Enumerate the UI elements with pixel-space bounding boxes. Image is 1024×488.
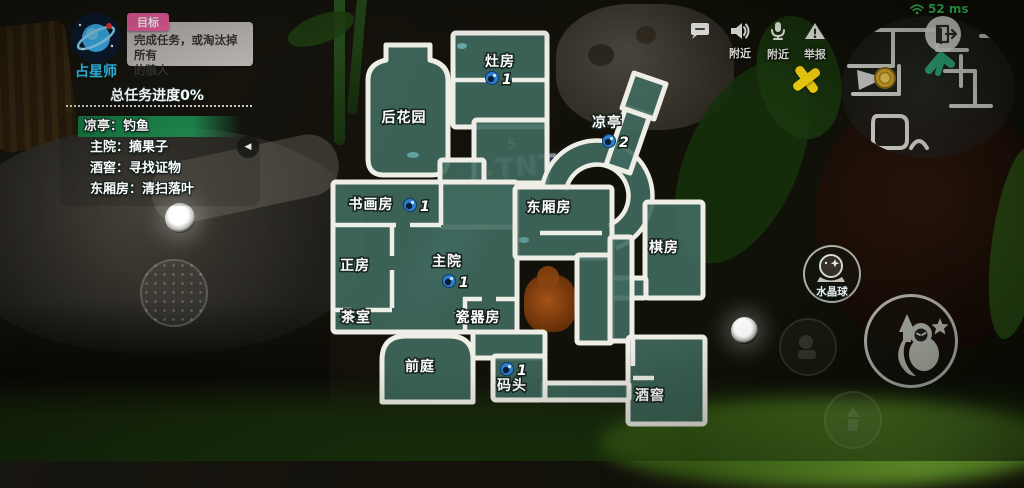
- divider: [66, 105, 252, 107]
- water-splash: [457, 43, 467, 49]
- disabled-ability-button[interactable]: [824, 391, 882, 449]
- task-text: 酒窖：寻找证物: [84, 161, 181, 176]
- eye-count: 1: [517, 363, 527, 379]
- task-panel-collapse-button[interactable]: ◀: [237, 136, 259, 158]
- room-wine-cellar: [628, 337, 705, 424]
- wifi-icon: [910, 4, 924, 15]
- room-label-pavilion: 凉亭: [592, 114, 622, 131]
- objective-badge: 目标: [127, 13, 169, 31]
- main-ability-button[interactable]: [864, 294, 958, 388]
- astrologer-planet-icon: [71, 13, 121, 63]
- ninja-character-icon: [872, 302, 950, 380]
- room-label-east-wing: 东厢房: [527, 199, 572, 216]
- task-item[interactable]: 酒窖：寻找证物: [84, 158, 260, 179]
- task-text: 主院：摘果子: [84, 140, 168, 155]
- room-pavilion-shape: [622, 73, 666, 119]
- report-button[interactable]: 举报: [795, 22, 835, 62]
- room-label-chess: 棋房: [649, 239, 679, 256]
- role-avatar[interactable]: [71, 13, 121, 63]
- disabled-ability-button[interactable]: [779, 318, 837, 376]
- corridor: [577, 255, 612, 343]
- door-exit-icon: [925, 16, 961, 52]
- nearby-mic-button[interactable]: 附近: [758, 21, 798, 62]
- report-icon: [804, 22, 826, 41]
- eye-count: 1: [459, 275, 469, 291]
- ping-value: 52 ms: [928, 2, 969, 16]
- task-text: 凉亭：钓鱼: [78, 119, 149, 134]
- room-label-back-garden: 后花园: [382, 109, 427, 126]
- mic-icon: [768, 21, 788, 41]
- room-label-porcelain: 瓷器房: [456, 309, 501, 326]
- task-text: 东厢房：清扫落叶: [84, 182, 194, 197]
- network-status: 52 ms: [910, 2, 969, 16]
- nearby-speaker-button[interactable]: 附近: [720, 22, 760, 61]
- water-splash: [519, 237, 529, 243]
- room-label-tea-room: 茶室: [340, 309, 371, 326]
- room-label-dock: 码头: [497, 377, 527, 394]
- eye-count: 1: [502, 72, 512, 88]
- room-label-wine-cellar: 酒窖: [635, 387, 665, 404]
- objective-text-line2: 的狼人: [134, 63, 247, 78]
- speaker-icon: [728, 22, 752, 40]
- task-list: 凉亭：钓鱼 < 主院：摘果子 酒窖：寻找证物 东厢房：清扫落叶: [60, 113, 260, 206]
- report-label: 举报: [795, 46, 835, 62]
- room-east-wing: [515, 187, 612, 258]
- chat-button[interactable]: [688, 21, 712, 43]
- disabled-ability-icon: [836, 403, 870, 437]
- progress-text: 总任务进度0%: [87, 85, 227, 105]
- coin-icon: [875, 68, 895, 88]
- eye-count: 1: [420, 199, 430, 215]
- room-label-front-yard: 前庭: [405, 358, 435, 375]
- nearby-speaker-label: 附近: [720, 45, 760, 61]
- nearby-mic-label: 附近: [758, 46, 798, 62]
- task-item[interactable]: 主院：摘果子: [84, 137, 260, 158]
- collapse-left-icon: ◀: [245, 142, 252, 152]
- crystal-ball-button[interactable]: 水晶球: [803, 245, 861, 303]
- task-item[interactable]: 东厢房：清扫落叶: [84, 179, 260, 200]
- crystal-ball-label: 水晶球: [805, 284, 859, 299]
- corridor: [543, 383, 629, 400]
- eye-count: 2: [619, 135, 629, 151]
- corridor: [610, 237, 632, 341]
- map-x-marker: [789, 62, 825, 98]
- room-label-calligraphy: 书画房: [349, 196, 394, 213]
- chat-bubble-icon: [688, 21, 712, 43]
- movement-joystick[interactable]: [140, 259, 208, 327]
- objective-text-line1: 完成任务，或淘汰掉所有: [134, 33, 247, 63]
- disabled-ability-icon: [791, 330, 825, 364]
- room-label-main-house: 正房: [340, 257, 370, 274]
- role-name: 占星师: [58, 61, 134, 81]
- water-splash: [407, 152, 419, 158]
- room-label-main-courtyard: 主院: [432, 253, 462, 270]
- room-label-kitchen: 灶房: [485, 53, 515, 70]
- task-item-active[interactable]: 凉亭：钓鱼 <: [78, 116, 242, 137]
- exit-button[interactable]: [925, 16, 961, 52]
